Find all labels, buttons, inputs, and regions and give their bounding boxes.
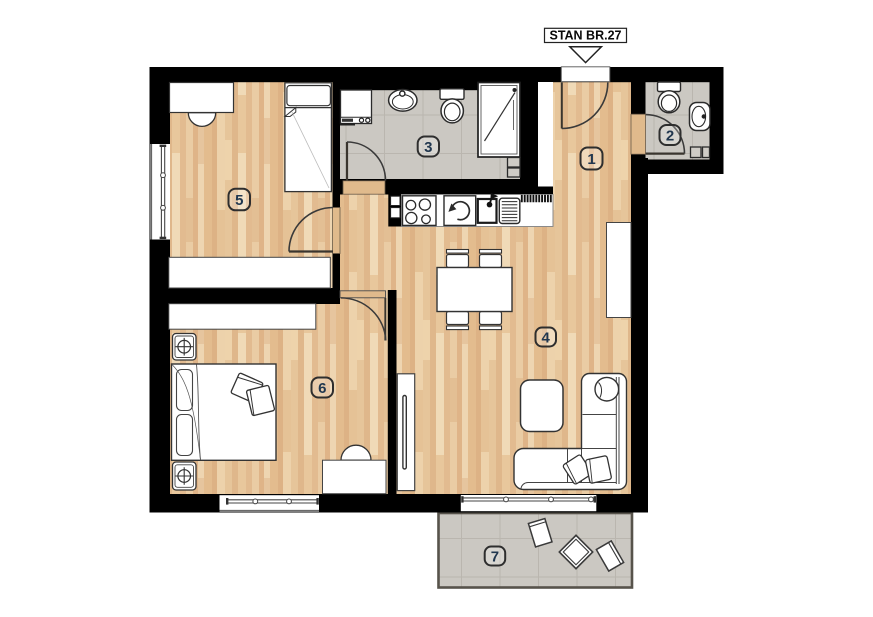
svg-text:2: 2 [666, 128, 674, 145]
svg-text:1: 1 [587, 151, 595, 168]
svg-text:7: 7 [491, 548, 499, 565]
svg-text:STAN BR.27: STAN BR.27 [549, 29, 621, 43]
svg-text:5: 5 [235, 192, 243, 209]
svg-text:4: 4 [542, 329, 551, 346]
svg-text:6: 6 [318, 380, 326, 397]
svg-text:3: 3 [424, 139, 432, 156]
